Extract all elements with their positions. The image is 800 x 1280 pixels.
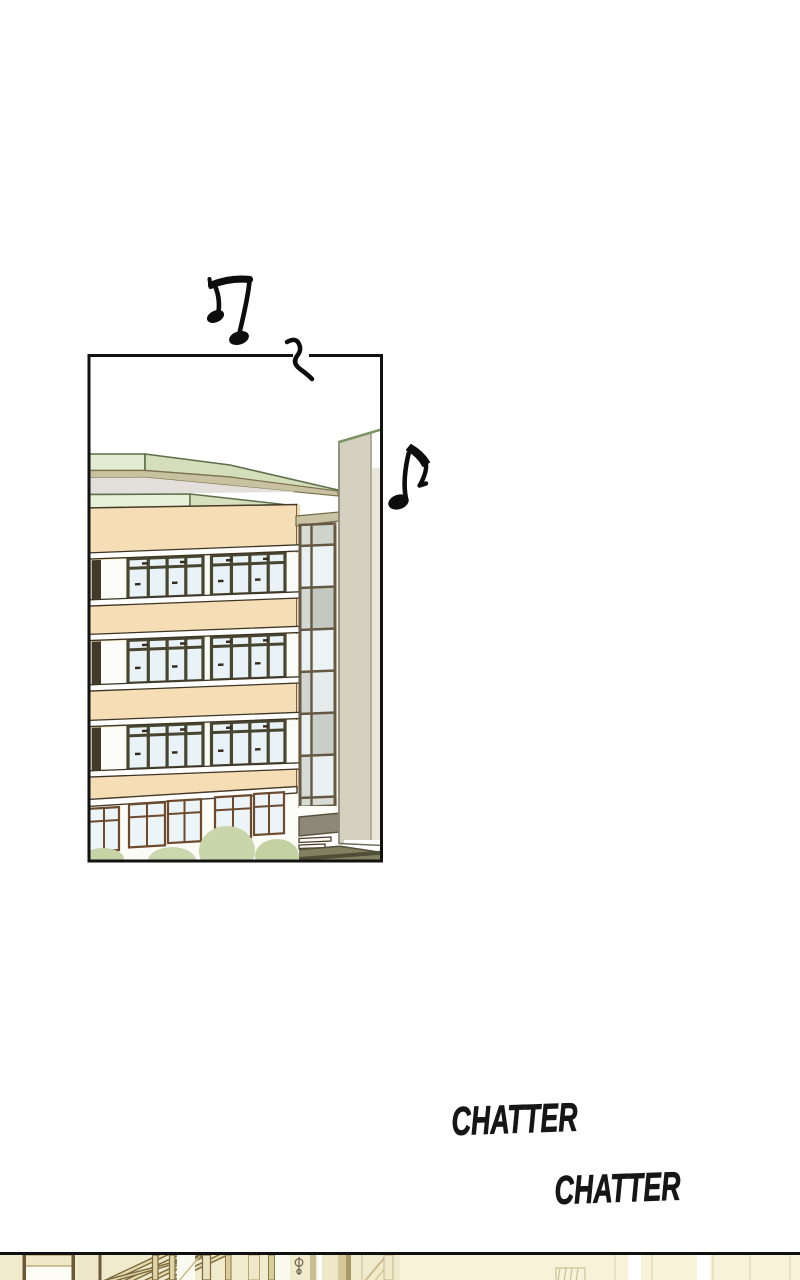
svg-text:CHATTER: CHATTER <box>554 1164 682 1213</box>
svg-text:CHATTER: CHATTER <box>451 1095 579 1144</box>
